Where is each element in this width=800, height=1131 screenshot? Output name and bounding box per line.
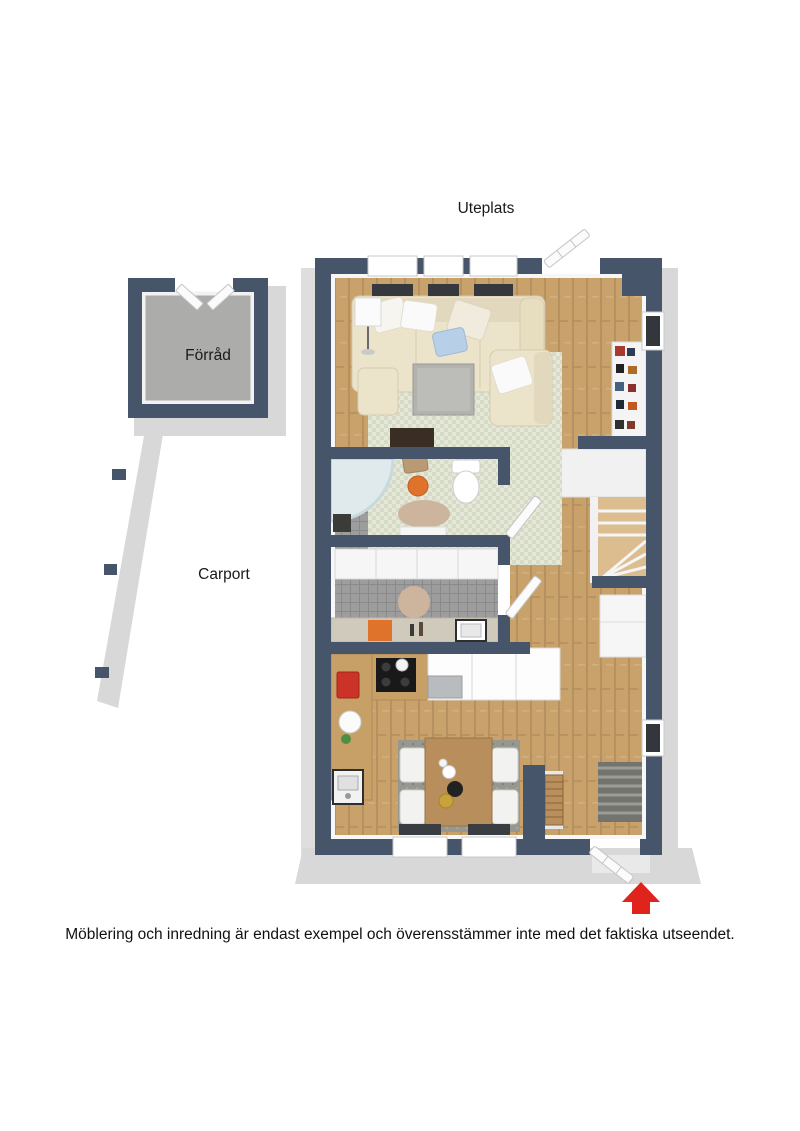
- sideboard: [390, 428, 434, 450]
- side-window-upper: [642, 312, 664, 350]
- bath-rug: [398, 500, 450, 528]
- carport-post: [104, 564, 117, 575]
- carport-post: [112, 469, 126, 480]
- doormat: [598, 762, 642, 822]
- floor-plan-rendering: [0, 0, 800, 1131]
- tall-cabinets: [428, 648, 560, 700]
- storage-label: Förråd: [185, 347, 231, 365]
- round-side-table: [339, 711, 361, 733]
- orange-stool: [408, 476, 428, 496]
- armchair: [490, 350, 552, 426]
- carport-beam: [97, 402, 168, 708]
- bookshelf: [612, 342, 646, 440]
- cooktop: [376, 658, 416, 692]
- wardrobes: [335, 549, 498, 579]
- disclaimer-text: Möblering och inredning är endast exempe…: [0, 926, 800, 944]
- coffee-table: [413, 364, 474, 415]
- laundry-sink: [456, 620, 486, 641]
- carport-label: Carport: [198, 566, 250, 584]
- orange-chair: [368, 620, 392, 641]
- entrance-arrow-icon: [622, 882, 660, 914]
- dining-furniture: [398, 738, 520, 832]
- hall-cabinet: [600, 595, 646, 657]
- patio-label: Uteplats: [458, 200, 515, 218]
- utility-rug: [398, 586, 430, 618]
- sofa-pillow: [400, 300, 438, 332]
- side-window-lower: [642, 720, 664, 756]
- radiator: [545, 771, 563, 829]
- carport-post: [95, 667, 109, 678]
- patio-door: [544, 229, 591, 268]
- pot: [396, 659, 408, 671]
- plant-pot: [341, 734, 351, 744]
- dishwasher: [428, 676, 462, 698]
- pouf: [358, 368, 398, 415]
- living-room-windows: [368, 256, 517, 296]
- bath-mat: [333, 514, 351, 532]
- kitchen-sink: [333, 770, 363, 804]
- red-appliance: [337, 672, 359, 698]
- under-stair-closet: [560, 449, 646, 497]
- laundry-counter: [331, 618, 498, 642]
- toilet: [452, 460, 480, 503]
